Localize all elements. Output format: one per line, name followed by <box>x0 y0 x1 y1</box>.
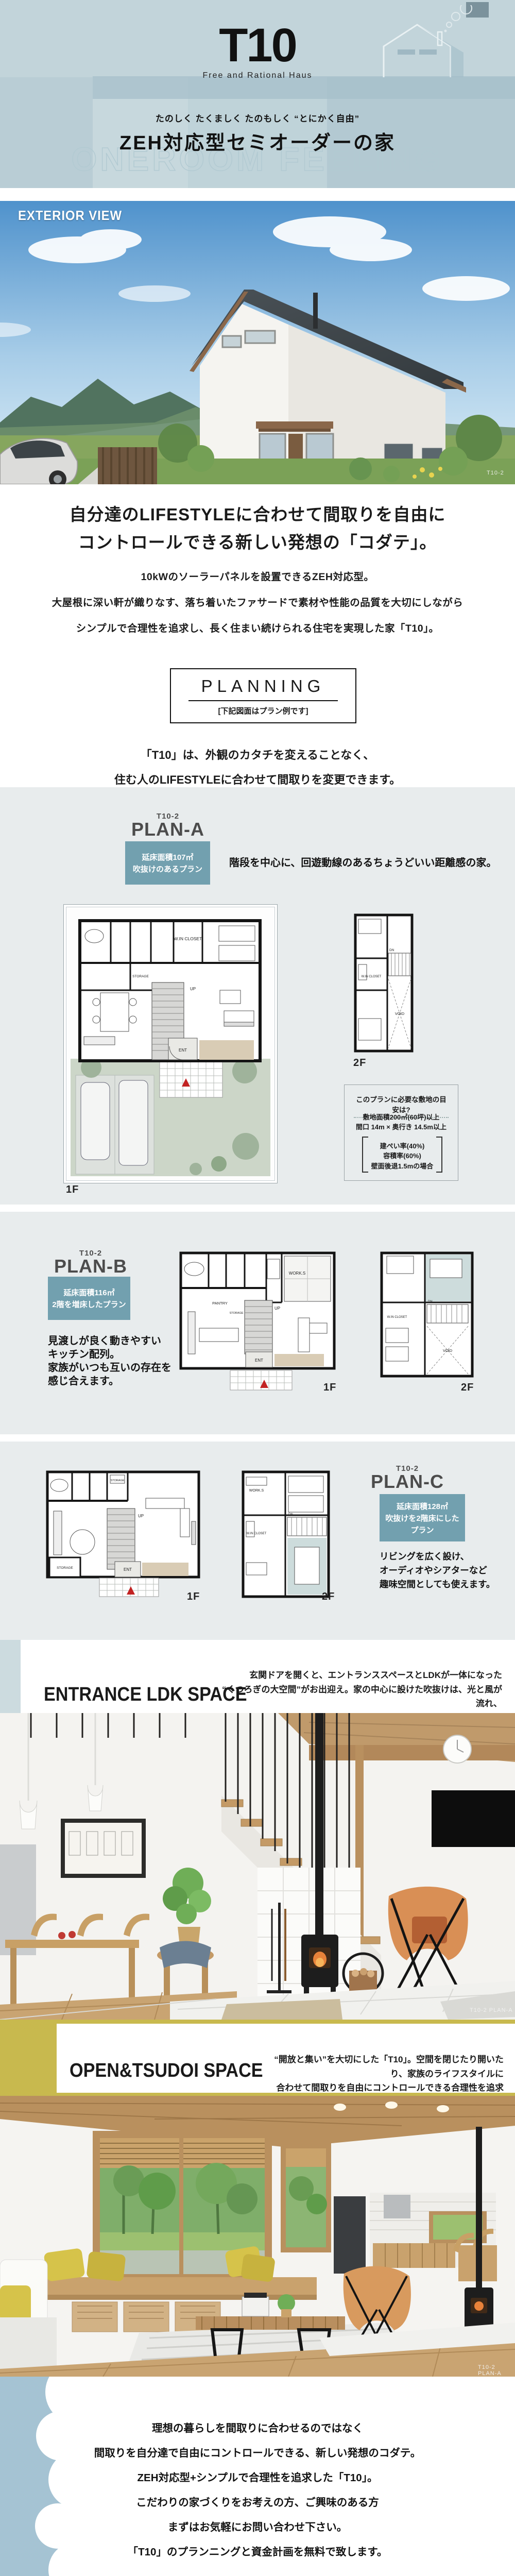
porch-tiles <box>160 1061 222 1097</box>
svg-text:DN: DN <box>389 948 394 952</box>
svg-text:STORAGE: STORAGE <box>111 1479 125 1482</box>
plan-a-1f-label: 1F <box>66 1184 79 1196</box>
svg-text:STORAGE: STORAGE <box>132 975 149 978</box>
outro-line-5: まずはお気軽にお問い合わせ下さい。 <box>0 2518 515 2534</box>
header-gap <box>0 188 515 201</box>
header-tagline: たのしく たくましく たのもしく “とにかく自由” <box>0 111 515 124</box>
outro-line-3: ZEH対応型+シンプルで合理性を追求した「T10」。 <box>0 2469 515 2484</box>
plan-b-2f-label: 2F <box>461 1382 474 1394</box>
svg-text:STORAGE: STORAGE <box>57 1566 73 1570</box>
intro-headline-1: 自分達のLIFESTYLEに合わせて間取りを自由に <box>0 501 515 526</box>
svg-text:VOID: VOID <box>443 1348 453 1353</box>
plan-a-type: 吹抜けのあるプラン <box>125 863 210 875</box>
planning-note: [下記図面はプラン例です] <box>171 705 355 716</box>
plan-c-2f-label: 2F <box>322 1591 335 1603</box>
svg-text:W.IN CLOSET: W.IN CLOSET <box>174 936 202 941</box>
brand-logo-sub: Free and Rational Haus <box>0 71 515 80</box>
plan-b-1f-label: 1F <box>323 1382 336 1394</box>
svg-text:UP: UP <box>138 1514 144 1518</box>
plan-c-type-2: プラン <box>380 1524 465 1536</box>
exterior-view-label: EXTERIOR VIEW <box>18 208 122 224</box>
entrance-band-edge <box>0 1640 21 1713</box>
plan-a-spec-box: 延床面積107㎡ 吹抜けのあるプラン <box>125 841 210 885</box>
plan-a-name: PLAN-A <box>124 820 212 839</box>
plan-b-desc: 見渡しが良く動きやすいキッチン配列。 家族がいつも互いの存在を感じ合えます。 <box>48 1334 171 1388</box>
plan-c-1f-drawing: STORAGE UP STORAGE ENT <box>45 1470 201 1600</box>
plan-c-type-1: 吹抜けを2階床にした <box>380 1513 465 1524</box>
plan-c-name: PLAN-C <box>363 1472 452 1491</box>
svg-text:WORK.S: WORK.S <box>289 1271 305 1276</box>
plan-b-area: 延床面積116㎡ <box>48 1287 130 1299</box>
site-info-line2: 間口 14m × 奥行き 14.5m以上 <box>345 1122 458 1131</box>
page-title: ZEH対応型セミオーダーの家 <box>0 127 515 155</box>
svg-text:PANTRY: PANTRY <box>212 1301 228 1306</box>
plan-b-1f-drawing: WORK.S PANTRY STORAGE UP ENT <box>179 1251 336 1393</box>
flyer-page: T10 Free and Rational Haus ONEROOM FEELI… <box>0 0 515 2576</box>
planning-underline <box>188 700 338 701</box>
svg-text:VOID: VOID <box>395 1011 405 1016</box>
plan-a-2f-label: 2F <box>353 1057 366 1069</box>
plan-a-2f-drawing: W.IN CLOSET DN VOID <box>353 913 414 1053</box>
open-tsudoi-photo <box>0 2096 515 2377</box>
svg-text:DN: DN <box>288 1513 293 1516</box>
svg-text:W.IN CLOSET: W.IN CLOSET <box>247 1532 267 1535</box>
plan-b-2f-drawing: W.IN CLOSET DN VOID <box>380 1251 474 1378</box>
site-info-line1: 敷地面積200㎡(60坪)以上 <box>345 1112 458 1122</box>
exterior-watermark: T10-2 <box>487 470 504 476</box>
plan-a-1f-drawing: W.IN CLOSET STORAGE UP ENT <box>64 905 276 1181</box>
photo2-watermark: T10-2 PLAN-A <box>478 2364 515 2377</box>
intro-body-2: 大屋根に深い軒が織りなす、落ち着いたファサードで素材や性能の品質を大切にしながら <box>0 594 515 609</box>
svg-text:ENT: ENT <box>179 1048 187 1053</box>
svg-text:W.IN CLOSET: W.IN CLOSET <box>362 975 382 978</box>
plan-a-area: 延床面積107㎡ <box>125 852 210 863</box>
plan-c-spec-box: 延床面積128㎡ 吹抜けを2階床にした プラン <box>380 1494 465 1541</box>
small-window <box>281 2143 331 2252</box>
svg-text:W.IN CLOSET: W.IN CLOSET <box>387 1316 407 1319</box>
svg-text:ENT: ENT <box>124 1567 132 1572</box>
site-info-bracket: 建ぺい率(40%) 容積率(60%) 壁面後退1.5mの場合 <box>362 1137 442 1173</box>
brand-logo: T10 <box>0 22 515 69</box>
svg-text:UP: UP <box>274 1306 280 1311</box>
outro-line-6: 「T10」のプランニングと資金計画を無料で致します。 <box>0 2543 515 2558</box>
plan-c-2f-drawing: WORK.S W.IN CLOSET DN <box>241 1470 331 1599</box>
intro-headline-2: コントロールできる新しい発想の「コダテ」。 <box>0 529 515 553</box>
intro-body-3: シンプルで合理性を追求し、長く住まい続けられる住宅を実現した家「T10」。 <box>0 620 515 635</box>
outro-line-1: 理想の暮らしを間取りに合わせるのではなく <box>0 2419 515 2435</box>
intro-body-1: 10kWのソーラーパネルを設置できるZEH対応型。 <box>0 568 515 583</box>
planning-lead-1: 「T10」は、外観のカタチを変えることなく、 <box>0 746 515 762</box>
planning-lead-2: 住む人のLIFESTYLEに合わせて間取りを変更できます。 <box>0 771 515 787</box>
site-info-box: このプランに必要な敷地の目安は? 敷地面積200㎡(60坪)以上 間口 14m … <box>344 1084 458 1181</box>
plan-b-name: PLAN-B <box>46 1257 135 1276</box>
planning-title: PLANNING <box>171 676 355 696</box>
plan-a-desc: 階段を中心に、回遊動線のあるちょうどいい距離感の家。 <box>229 854 497 869</box>
svg-text:UP: UP <box>190 987 196 991</box>
plan-c-desc: リビングを広く設け、オーディオやシアターなど趣味空間としても使えます。 <box>380 1550 495 1591</box>
plan-b-type: 2階を増床したプラン <box>48 1299 130 1311</box>
outro-line-4: こだわりの家づくりをお考えの方、ご興味のある方 <box>0 2494 515 2509</box>
plan-c-1f-label: 1F <box>187 1591 200 1603</box>
plan-b-spec-box: 延床面積116㎡ 2階を増床したプラン <box>48 1277 130 1320</box>
outro-line-2: 間取りを自分達で自由にコントロールできる、新しい発想のコダテ。 <box>0 2444 515 2460</box>
photo1-watermark: T10-2 PLAN-A <box>470 2007 513 2013</box>
open-heading: OPEN&TSUDOI SPACE <box>70 2060 263 2082</box>
entrance-ldk-photo <box>0 1713 515 2020</box>
svg-text:DN: DN <box>428 1300 433 1303</box>
plan-c-area: 延床面積128㎡ <box>380 1501 465 1513</box>
entrance-heading: ENTRANCE LDK SPACE <box>44 1684 247 1706</box>
svg-text:STORAGE: STORAGE <box>230 1312 244 1315</box>
svg-text:ENT: ENT <box>255 1358 263 1363</box>
svg-text:WORK.S: WORK.S <box>249 1489 264 1493</box>
planning-box: PLANNING [下記図面はプラン例です] <box>170 668 356 723</box>
exterior-photo <box>0 201 515 484</box>
